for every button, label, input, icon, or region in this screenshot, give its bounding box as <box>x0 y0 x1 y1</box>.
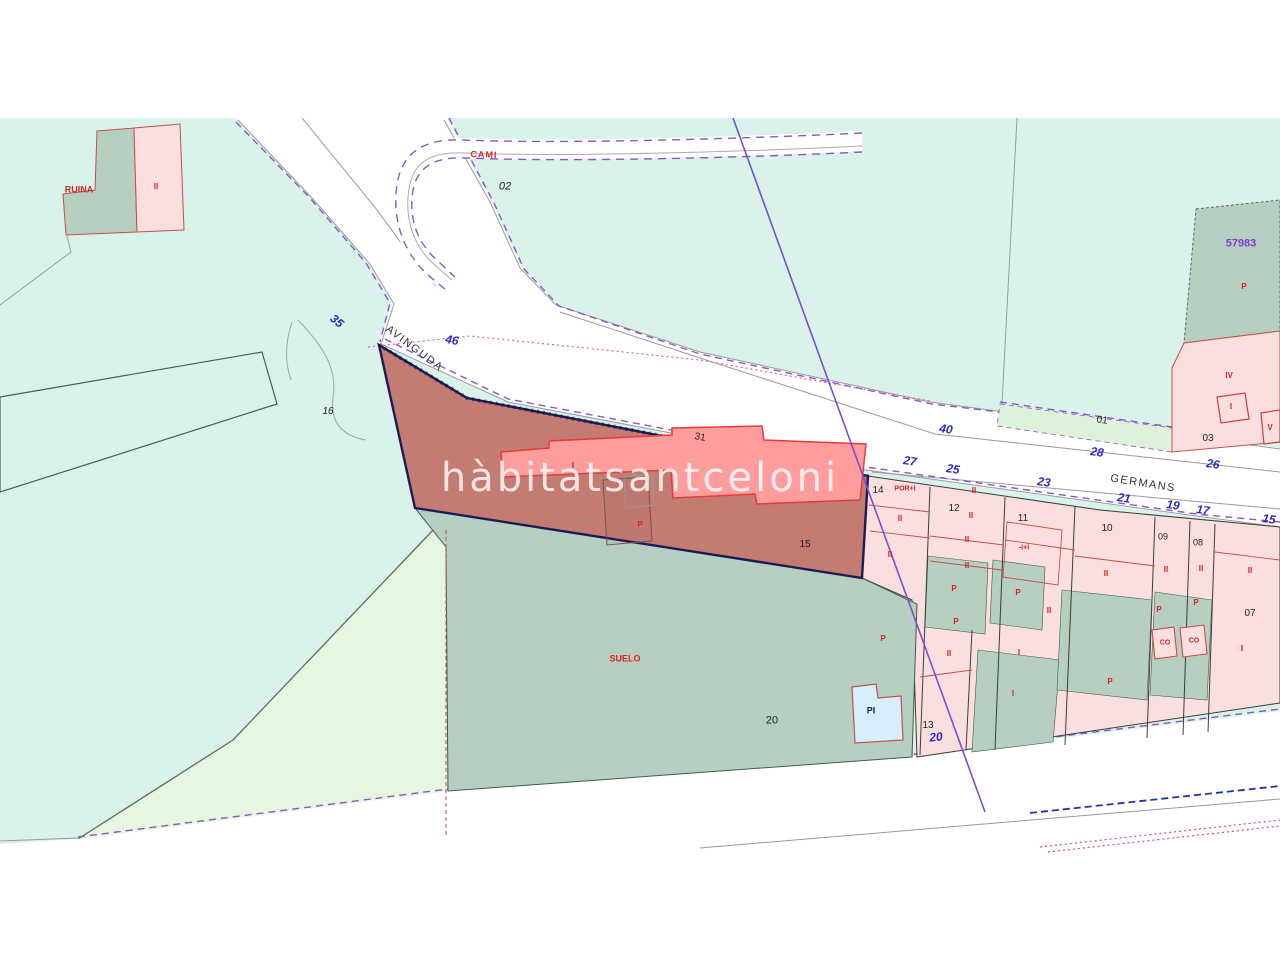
co-building-b <box>1180 625 1207 657</box>
cadastral-map-image: AVINGUDAGERMANSCAMI354640282627252321191… <box>0 0 1280 960</box>
parcel-ruina-pink <box>134 124 184 232</box>
building-03-a <box>1217 393 1249 423</box>
co-building-a <box>1152 627 1177 659</box>
parcel-57983 <box>1184 200 1280 343</box>
building-03-b <box>1261 410 1280 444</box>
watermark: hàbitatsantceloni <box>441 455 839 501</box>
